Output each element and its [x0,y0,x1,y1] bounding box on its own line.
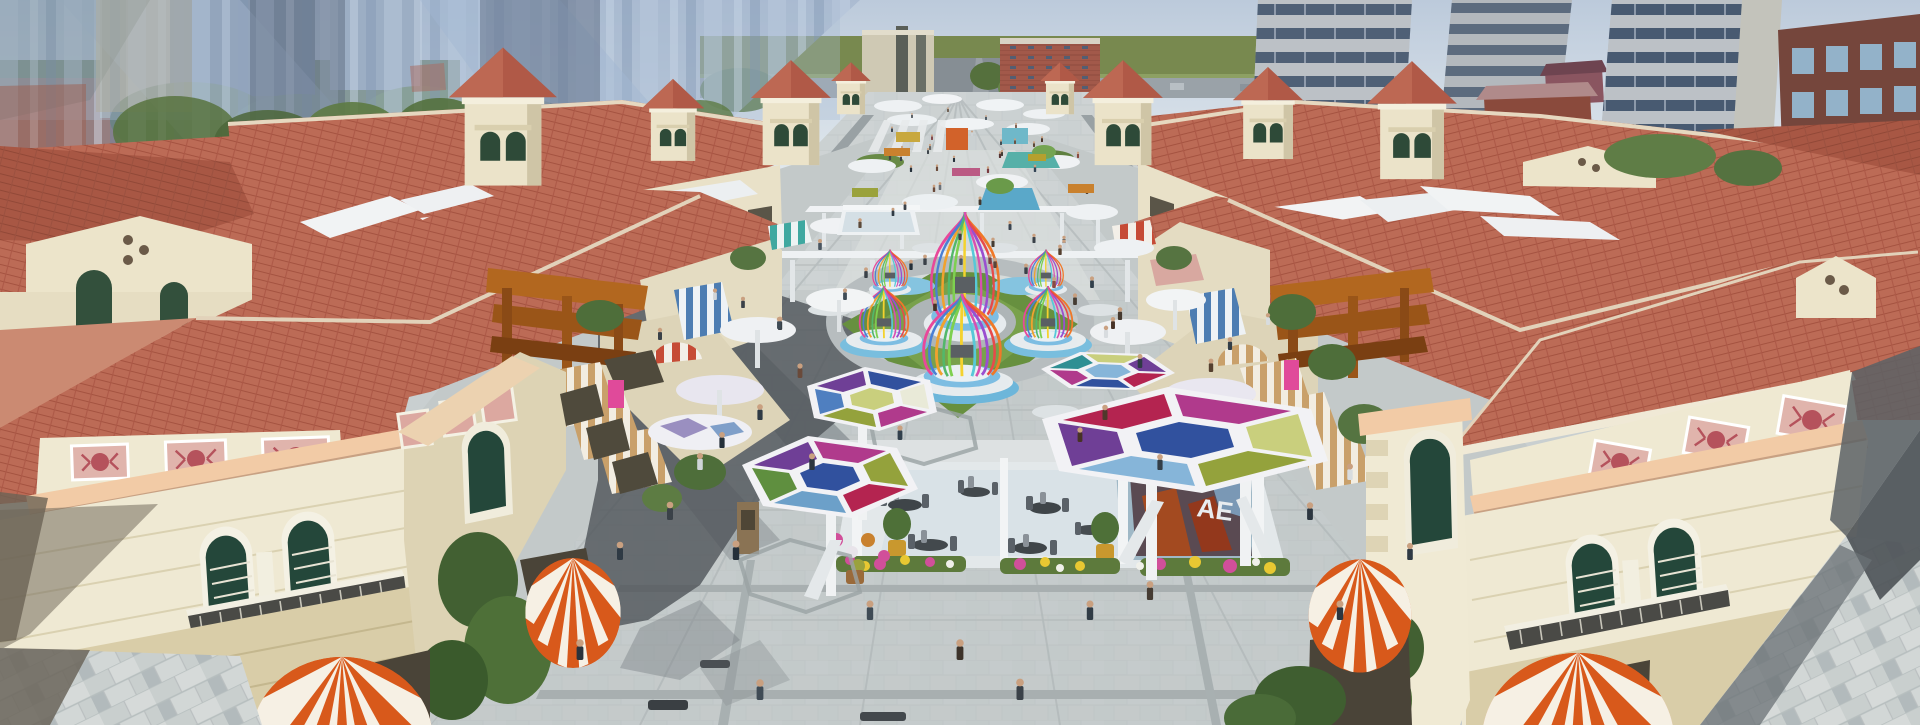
svg-text:AE: AE [1195,492,1235,527]
